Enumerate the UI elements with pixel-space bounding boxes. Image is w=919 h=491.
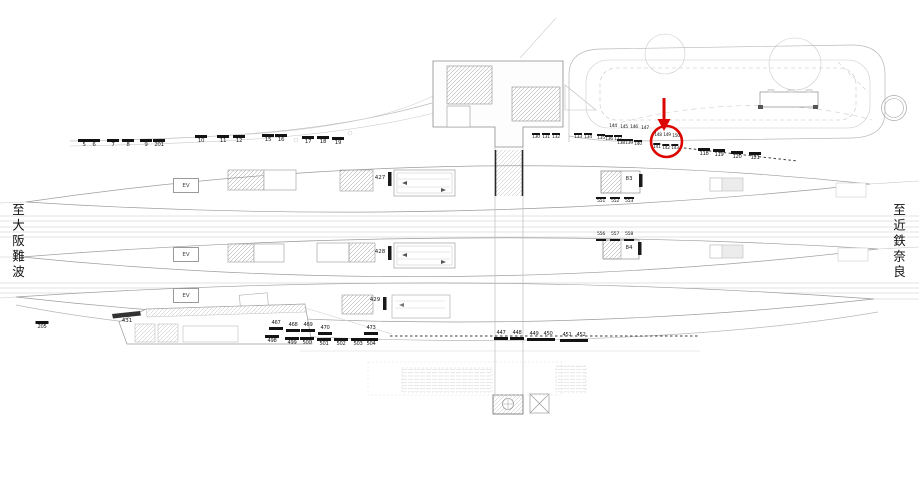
escalator-429: [392, 295, 450, 318]
tick-428: [388, 246, 392, 260]
destination-left: 至大阪難波: [8, 203, 27, 281]
rotary-inner: [885, 99, 904, 118]
tick-427: [388, 172, 392, 186]
station-plan-drawing: [0, 0, 919, 491]
escalator-428: [394, 243, 455, 268]
west-approach-tracks: [70, 96, 438, 146]
under-structure-west: [402, 368, 492, 392]
station-building: [433, 18, 596, 147]
stair-block-west: [447, 66, 492, 104]
highlight-circle: [651, 126, 682, 157]
under-structure-east: [556, 366, 586, 392]
station-track-plan: 5678920110111215161718191301311321331341…: [0, 0, 919, 491]
stair-block-east: [512, 87, 560, 121]
escalator-427: [394, 170, 455, 196]
building-ramp: [565, 85, 596, 110]
elevator-shaft: [530, 394, 549, 413]
tick-83: [639, 174, 643, 187]
highlight: [651, 98, 682, 157]
destination-right: 至近鉄奈良: [889, 203, 908, 281]
building-room: [447, 106, 470, 127]
tick-429: [383, 297, 387, 310]
bus-shelter: [758, 90, 818, 110]
bus-plaza: [569, 34, 907, 142]
tick-84: [638, 242, 642, 255]
